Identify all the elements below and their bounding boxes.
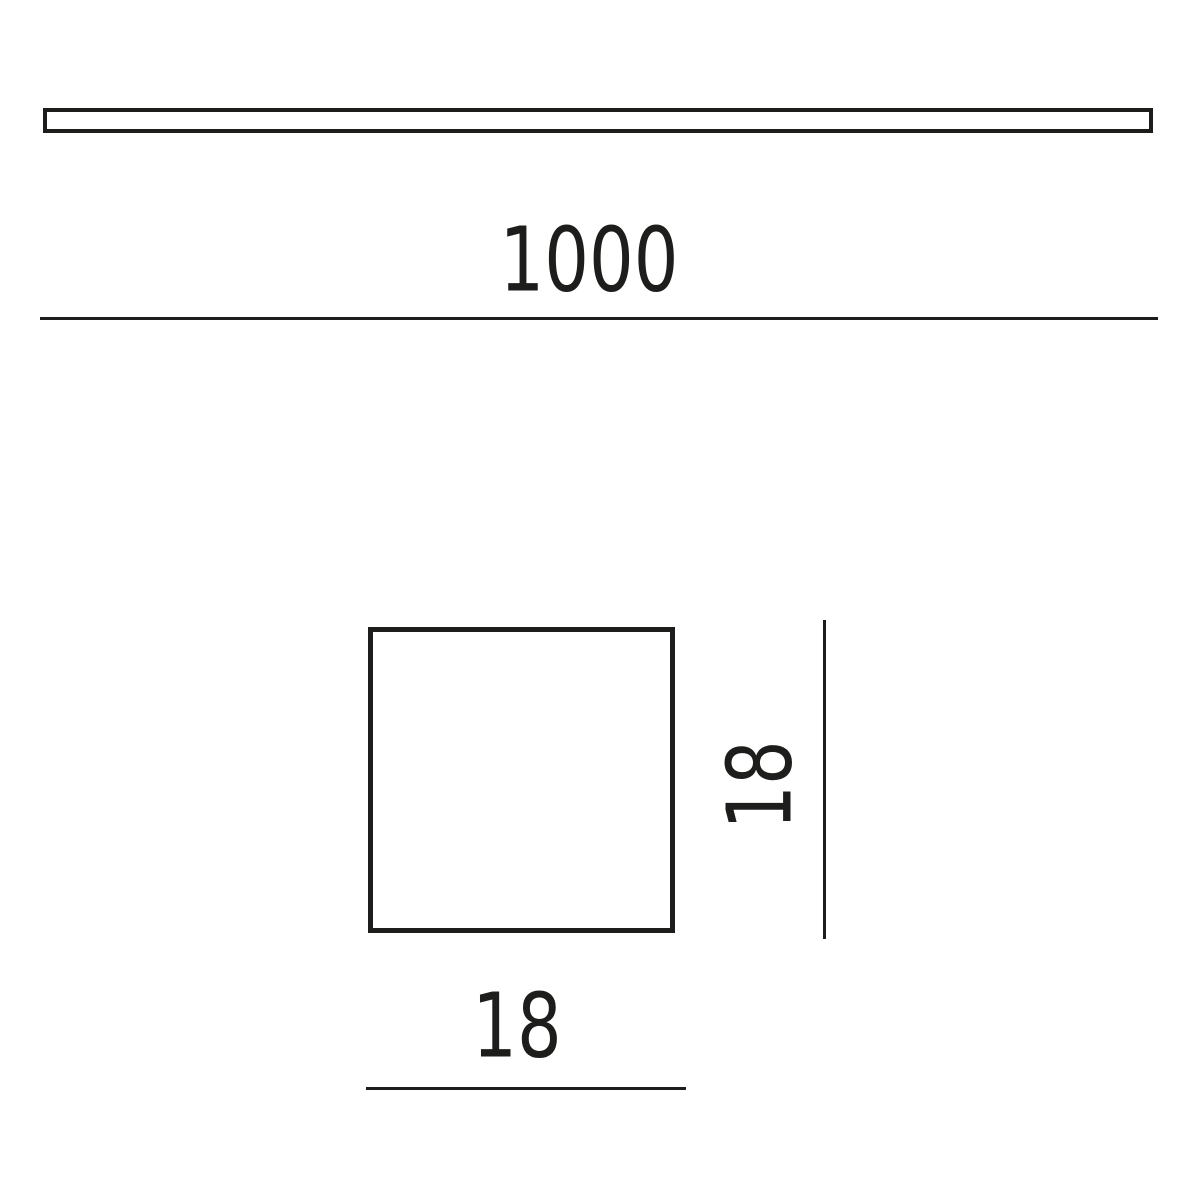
- length-dimension-line: [40, 317, 1158, 320]
- width-dimension-line: [366, 1087, 686, 1090]
- height-dimension-line: [823, 620, 826, 939]
- length-dimension-label: 1000: [500, 216, 679, 305]
- cross-section-square: [368, 627, 675, 933]
- profile-side-view-bar: [43, 108, 1153, 133]
- dimension-drawing: 1000 18 18: [0, 0, 1200, 1200]
- height-dimension-label: 18: [716, 740, 805, 829]
- width-dimension-label: 18: [472, 982, 561, 1071]
